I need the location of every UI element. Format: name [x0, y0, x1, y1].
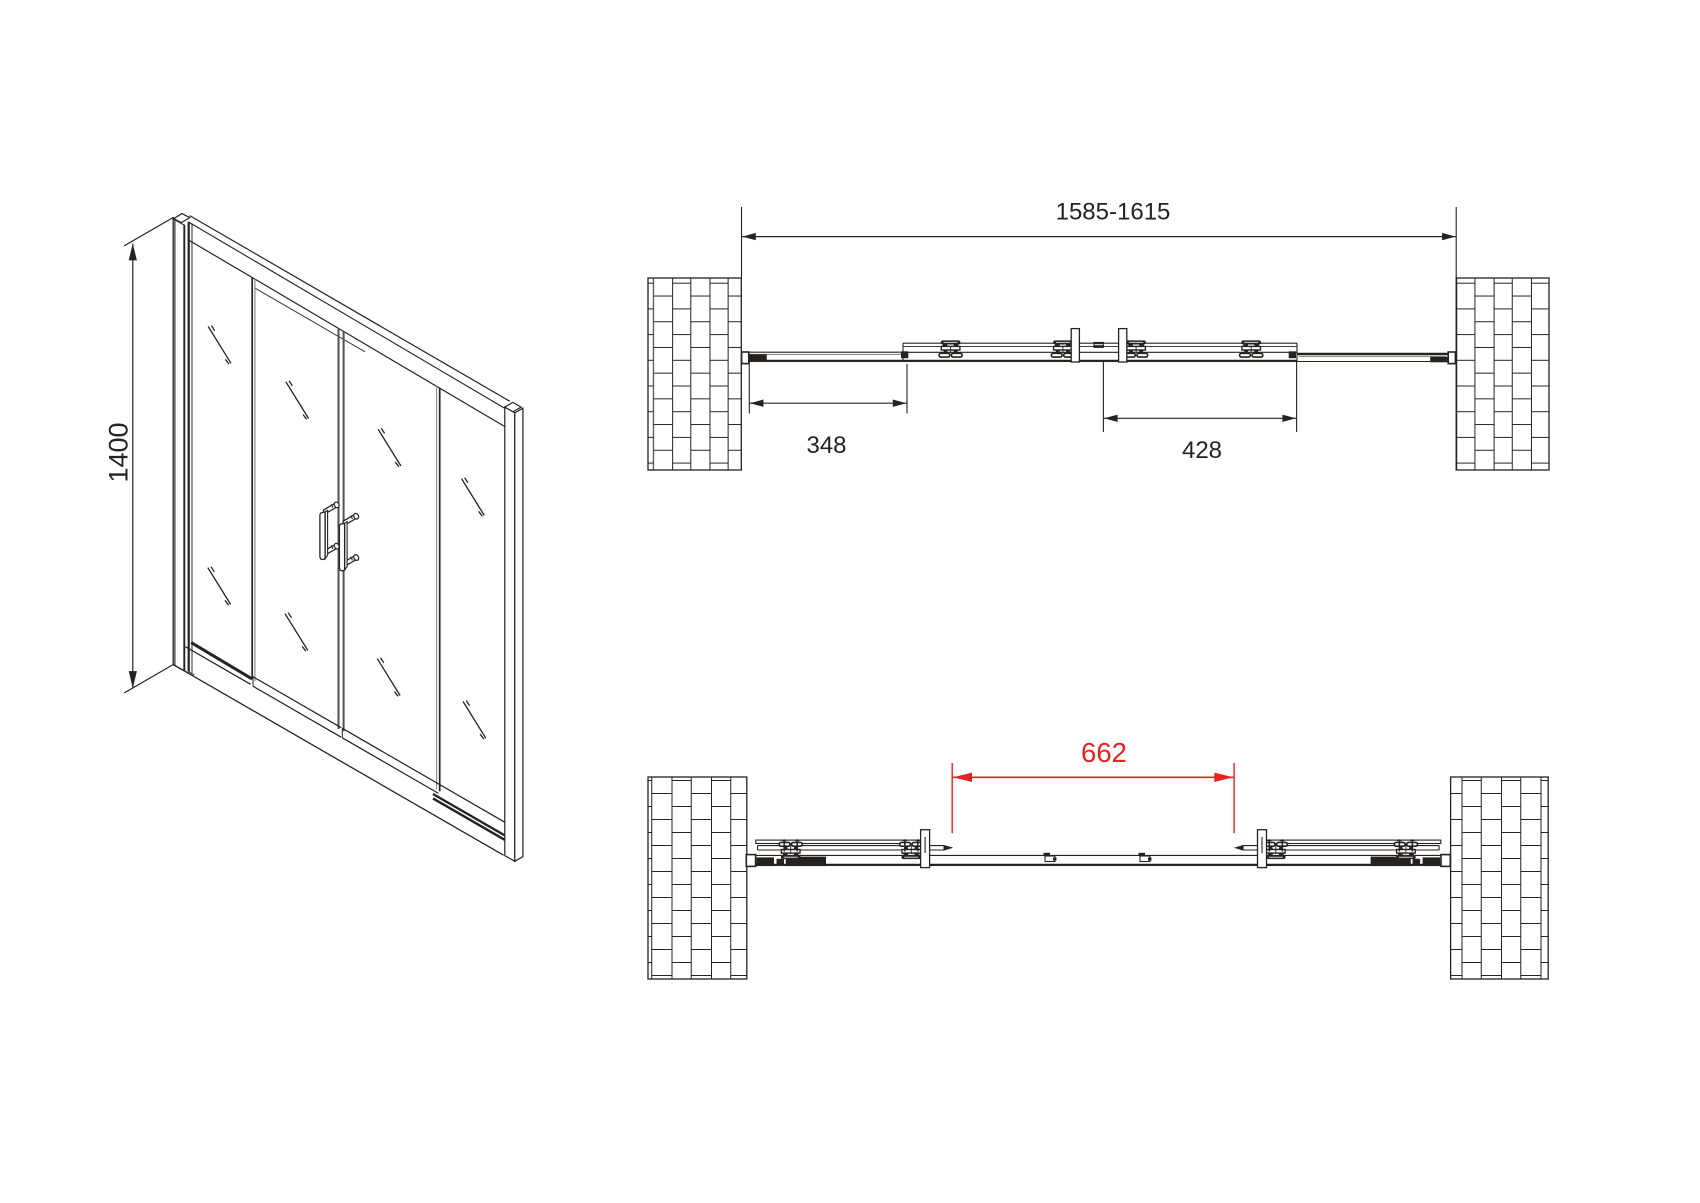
svg-text:348: 348: [806, 432, 846, 459]
svg-text:1585-1615: 1585-1615: [1056, 199, 1171, 226]
svg-text:662: 662: [1081, 737, 1127, 768]
svg-text:428: 428: [1182, 437, 1222, 464]
svg-text:1400: 1400: [104, 422, 134, 482]
